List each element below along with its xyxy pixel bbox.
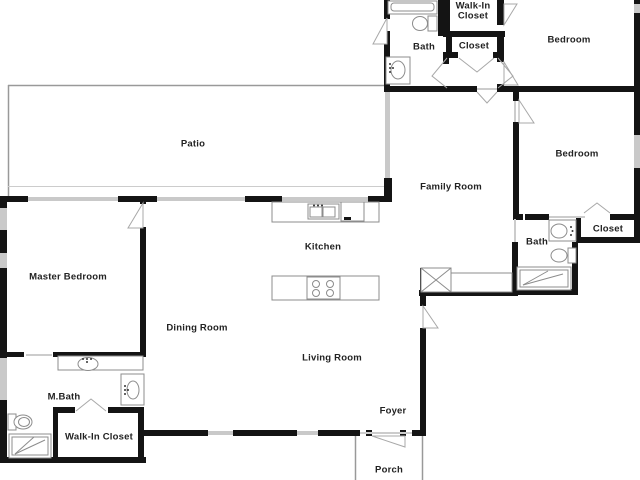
shower-icon-master [9,434,51,458]
room-label-master-bedroom: Master Bedroom [29,272,107,283]
room-label-patio: Patio [181,139,205,150]
room-label-kitchen: Kitchen [305,242,341,253]
door-master-bedroom [128,203,143,228]
door-right-closet-bifold [584,203,610,213]
room-label-bedroom-top: Bedroom [547,35,590,46]
door-living-east [423,306,438,328]
room-label-bath-right: Bath [526,237,548,248]
fixtures-layer [8,1,576,458]
room-label-walk-in-closet-bottom: Walk-In Closet [65,432,133,443]
walls-layer [0,0,640,463]
room-label-bath-top: Bath [413,42,435,53]
opening-sills [26,88,585,434]
shower-icon-right [517,267,571,290]
room-label-living-room: Living Room [302,353,362,364]
toilet-icon-top [413,16,438,31]
door-hall-closet [459,58,494,72]
sink-icon-top-bath [386,57,410,84]
laundry-counter [451,273,512,292]
kitchen-counter [272,202,379,222]
room-label-bedroom-right: Bedroom [555,149,598,160]
washer-icon [421,268,451,292]
door-front-entry [372,436,405,447]
door-bedroom-right [519,100,534,123]
room-label-porch: Porch [375,465,403,476]
sink-icon-right-bath [549,220,576,241]
room-label-dining-room: Dining Room [166,323,227,334]
range-icon [341,202,364,221]
room-label-m-bath: M.Bath [48,392,81,403]
room-label-family-room: Family Room [420,182,482,193]
bathtub-icon [388,1,437,14]
kitchen-island [272,276,379,300]
room-label-foyer: Foyer [380,406,407,417]
door-walk-in-closet-top [504,4,517,25]
floor-plan-page: Patio Bath Walk-In Closet Closet Bedroom… [0,0,640,480]
room-label-closet-right: Closet [593,224,623,235]
door-top-bath [373,18,387,44]
room-label-closet-top: Closet [459,41,489,52]
toilet-icon-master [8,414,32,430]
door-swings-layer [76,4,610,447]
sink-icon-master-2 [121,374,144,405]
door-master-closet-bifold [76,399,106,411]
vanity-master-bath [58,356,143,371]
room-label-walk-in-closet-top: Walk-In Closet [444,2,502,23]
door-family-room [477,92,497,103]
toilet-icon-right [551,248,576,263]
